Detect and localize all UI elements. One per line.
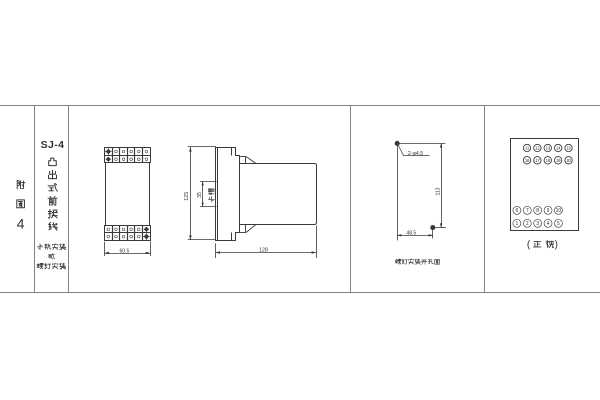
svg-text:4: 4 [17, 217, 25, 233]
svg-text:5: 5 [557, 221, 560, 227]
svg-text:7: 7 [526, 208, 529, 214]
svg-text:48.5: 48.5 [406, 230, 416, 236]
svg-text:125: 125 [184, 192, 190, 201]
svg-text:10: 10 [556, 208, 562, 214]
svg-text:128: 128 [259, 247, 268, 253]
svg-text:3: 3 [536, 221, 539, 227]
svg-text:8: 8 [536, 208, 539, 214]
svg-text:6: 6 [516, 208, 519, 214]
svg-text:35: 35 [197, 192, 203, 198]
svg-text:SJ-4: SJ-4 [41, 139, 65, 151]
svg-text:60.5: 60.5 [120, 249, 130, 255]
svg-text:): ) [555, 240, 558, 251]
svg-text:2-φ4.5: 2-φ4.5 [408, 151, 423, 157]
svg-text:4: 4 [547, 221, 550, 227]
svg-text:2: 2 [526, 221, 529, 227]
svg-text:113: 113 [435, 187, 441, 195]
svg-text:1: 1 [516, 221, 519, 227]
svg-text:9: 9 [547, 208, 550, 214]
